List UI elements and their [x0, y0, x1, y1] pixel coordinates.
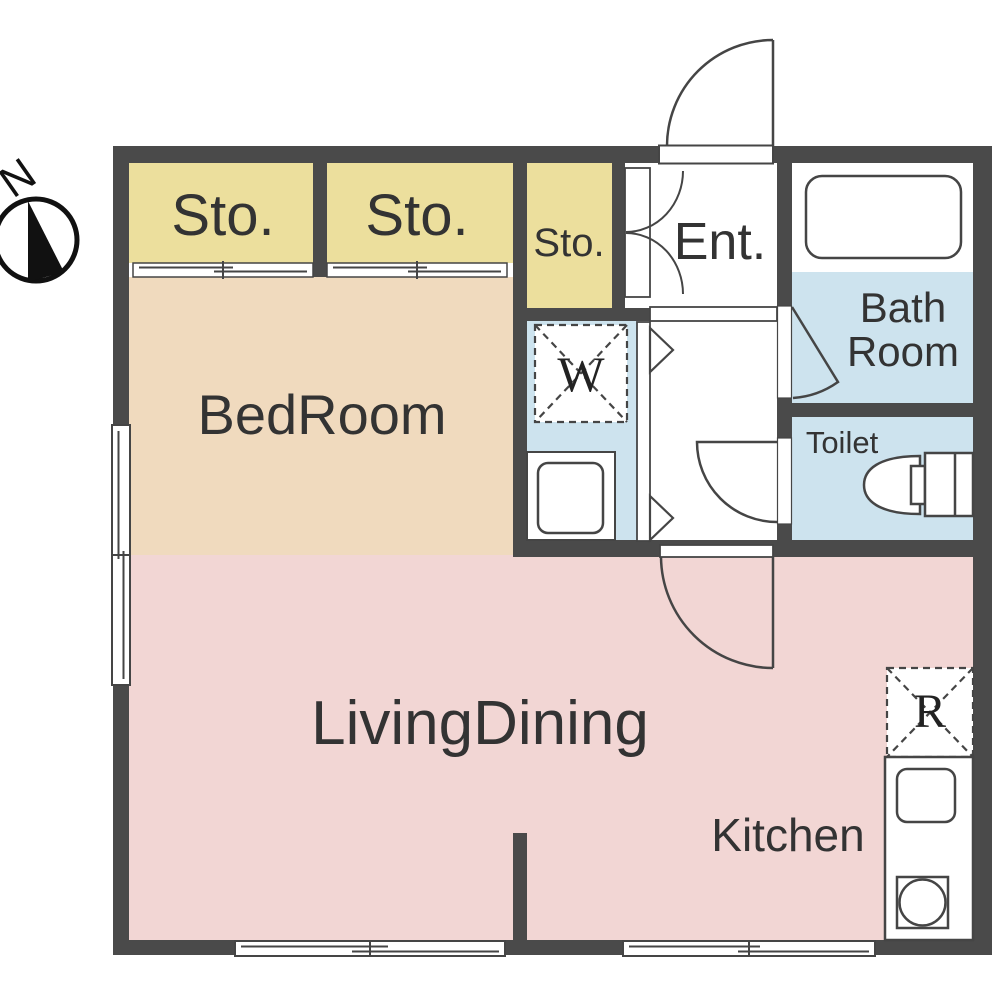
entrance-opening — [659, 146, 773, 164]
kitchen-label: Kitchen — [711, 809, 864, 861]
toilet-icon — [864, 453, 973, 516]
bath-label-line2: Room — [847, 328, 959, 375]
wall-center-vertical — [513, 163, 527, 557]
wall-storage-divider — [313, 163, 327, 277]
storage3-label: Sto. — [533, 221, 604, 265]
kitchen-sink-icon — [897, 769, 955, 822]
refrigerator-label: R — [914, 685, 946, 738]
entrance-door-arc — [667, 40, 773, 146]
window-bottom-kitchen — [623, 941, 875, 956]
window-bottom-living — [235, 941, 505, 956]
kitchen-counter — [885, 757, 973, 940]
entrance-step-strip — [650, 307, 777, 321]
washbasin-sink-icon — [538, 463, 603, 533]
stove-icon — [897, 877, 948, 928]
bath-door-opening — [778, 306, 792, 398]
sliding-door-storage1 — [133, 261, 313, 279]
sliding-door-storage2 — [327, 261, 507, 279]
living-door-opening — [660, 545, 773, 557]
wall-bath-toilet — [792, 403, 973, 417]
folding-door-upper — [650, 328, 673, 372]
washbasin — [527, 452, 615, 540]
washer-label: W — [557, 346, 605, 402]
window-left — [112, 425, 130, 685]
compass-needle — [28, 201, 64, 282]
toilet-door-arc — [697, 442, 777, 522]
floor-plan-svg: Sto. Sto. Sto. Ent. Bath Room W Toilet B… — [0, 0, 1000, 1000]
compass-icon: N — [0, 149, 77, 282]
folding-door-track — [637, 322, 650, 541]
bedroom-label: BedRoom — [197, 383, 446, 446]
entrance-label: Ent. — [674, 213, 767, 271]
storage1-label: Sto. — [171, 183, 274, 248]
folding-door-lower — [650, 496, 673, 540]
toilet-tank — [925, 453, 973, 516]
wall-exterior-right — [973, 146, 992, 955]
toilet-door-opening — [778, 438, 792, 524]
toilet-label: Toilet — [806, 425, 879, 460]
storage2-label: Sto. — [365, 183, 468, 248]
living-dining-label: LivingDining — [311, 689, 649, 758]
floor-plan: Sto. Sto. Sto. Ent. Bath Room W Toilet B… — [0, 0, 1000, 1000]
wall-stub-kitchen — [513, 833, 527, 940]
wall-exterior-top — [113, 146, 992, 163]
bath-label-line1: Bath — [860, 284, 946, 331]
bathtub-icon — [806, 176, 961, 258]
wall-storage3-entrance — [612, 163, 625, 308]
toilet-seat-step — [911, 466, 925, 504]
